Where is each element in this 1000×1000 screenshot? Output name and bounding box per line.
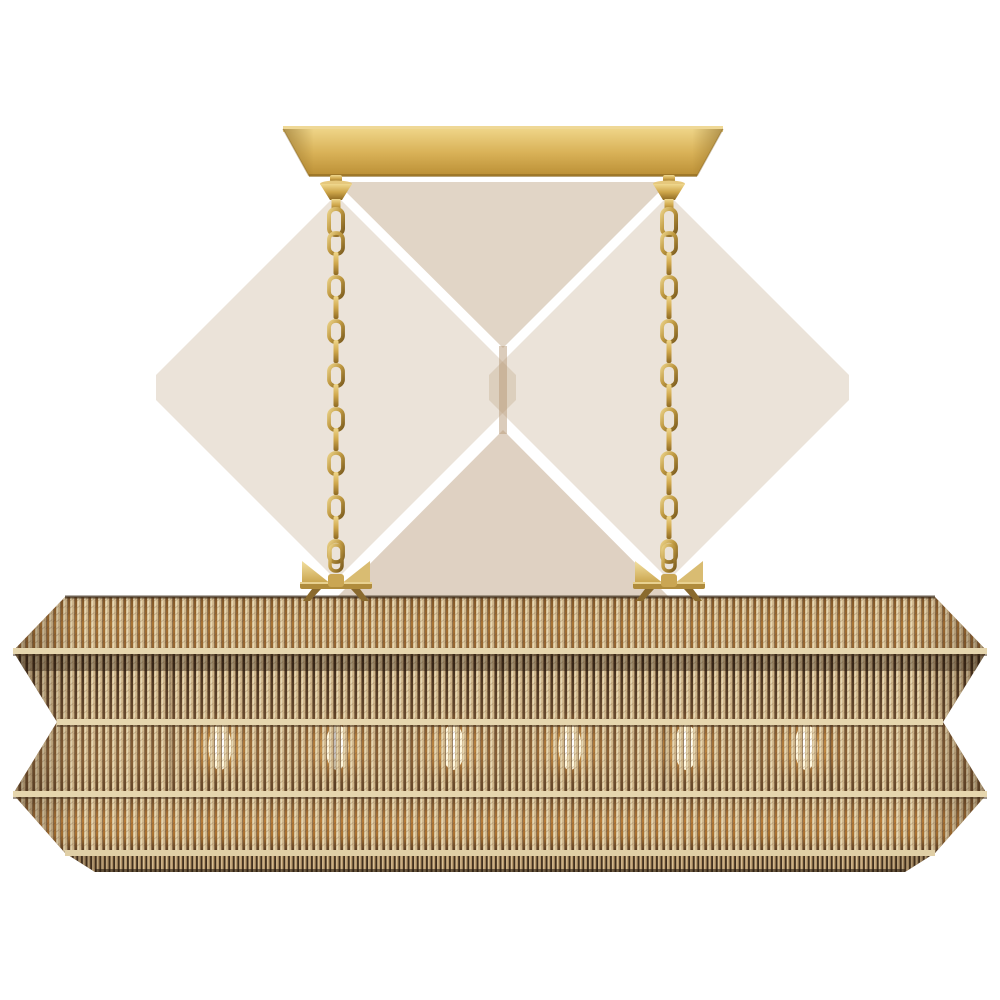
rim-722	[57, 719, 943, 725]
tier1-end-shade	[13, 597, 987, 651]
rim-794	[13, 791, 987, 797]
rim-651	[13, 648, 987, 654]
canopy-end-shading	[283, 129, 723, 176]
rim-794-shadow	[13, 797, 987, 799]
tier4-end-shade	[13, 794, 987, 853]
rim-651-shadow	[13, 654, 987, 656]
product-image	[0, 0, 1000, 1000]
rim-853	[65, 850, 935, 856]
ceiling-canopy	[283, 126, 723, 177]
rattan-shade	[13, 596, 987, 873]
haze-center-neck	[499, 346, 507, 434]
end-shading	[13, 597, 987, 872]
canopy-bottom-lip	[309, 174, 697, 177]
chandelier-illustration	[0, 0, 1000, 1000]
top-rim	[65, 596, 935, 599]
bottom-edge	[95, 869, 905, 872]
tier3-end-shade	[13, 722, 987, 794]
rim-722-shadow	[57, 725, 943, 727]
